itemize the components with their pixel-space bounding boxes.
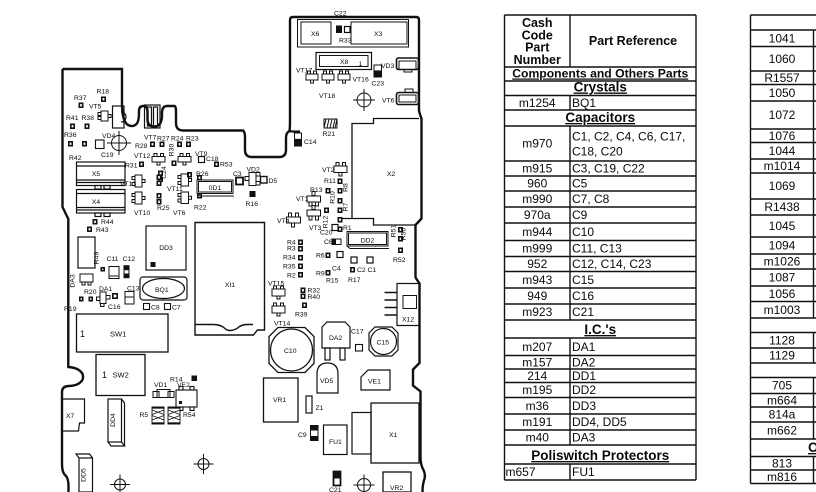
svg-text:DA2: DA2 — [572, 355, 596, 369]
svg-text:R22: R22 — [194, 205, 207, 212]
svg-text:VD4: VD4 — [102, 133, 115, 140]
svg-text:C1: C1 — [368, 267, 377, 274]
svg-text:1050: 1050 — [769, 86, 796, 100]
svg-text:C22: C22 — [334, 11, 347, 18]
svg-text:DD3: DD3 — [159, 245, 173, 252]
svg-text:R35: R35 — [283, 264, 296, 271]
svg-text:m990: m990 — [522, 192, 552, 206]
svg-text:VT18: VT18 — [319, 93, 335, 100]
svg-text:R20: R20 — [84, 289, 97, 296]
svg-text:m191: m191 — [522, 415, 552, 429]
svg-text:VT10: VT10 — [134, 210, 150, 217]
svg-text:R12: R12 — [323, 216, 330, 229]
svg-text:R43: R43 — [96, 227, 109, 234]
svg-text:m662: m662 — [767, 424, 797, 438]
svg-text:DD4, DD5: DD4, DD5 — [572, 415, 627, 429]
svg-text:XI1: XI1 — [225, 282, 235, 289]
svg-text:C16: C16 — [108, 304, 121, 311]
svg-text:Number: Number — [514, 53, 561, 67]
svg-text:Poliswitch Protectors: Poliswitch Protectors — [531, 448, 669, 463]
svg-text:C11: C11 — [107, 256, 119, 263]
svg-text:I.C.'s: I.C.'s — [584, 322, 616, 337]
svg-text:m40: m40 — [526, 431, 550, 445]
svg-text:0D1: 0D1 — [209, 185, 222, 192]
svg-text:m1003: m1003 — [764, 303, 801, 317]
svg-text:1: 1 — [102, 370, 107, 380]
svg-text:1041: 1041 — [769, 31, 796, 45]
svg-text:R1: R1 — [343, 225, 352, 232]
svg-text:C18, C20: C18, C20 — [572, 145, 623, 159]
svg-text:VR1: VR1 — [273, 397, 286, 404]
svg-text:R27: R27 — [157, 136, 170, 143]
svg-text:R53: R53 — [220, 162, 233, 169]
svg-text:R23: R23 — [186, 136, 199, 143]
svg-text:m923: m923 — [522, 305, 552, 319]
svg-text:R44: R44 — [101, 219, 114, 226]
svg-text:VT6: VT6 — [382, 98, 395, 105]
svg-text:1045: 1045 — [769, 219, 796, 233]
svg-text:R52: R52 — [393, 257, 406, 264]
svg-text:m816: m816 — [767, 470, 797, 484]
svg-text:C17: C17 — [351, 329, 364, 336]
svg-text:R39: R39 — [295, 312, 308, 319]
svg-text:X4: X4 — [92, 199, 101, 206]
svg-text:m1014: m1014 — [764, 159, 801, 173]
svg-text:C10: C10 — [284, 348, 297, 355]
svg-text:DA3: DA3 — [572, 431, 596, 445]
svg-text:R9: R9 — [316, 271, 325, 278]
svg-text:X6: X6 — [311, 31, 320, 38]
svg-text:R6: R6 — [316, 253, 325, 260]
svg-text:C11, C13: C11, C13 — [572, 242, 622, 256]
svg-text:VT4: VT4 — [277, 218, 290, 225]
svg-text:VT7: VT7 — [144, 135, 157, 142]
svg-text:m943: m943 — [522, 273, 552, 287]
svg-text:R42: R42 — [69, 155, 82, 162]
svg-text:C8: C8 — [151, 305, 160, 312]
svg-text:705: 705 — [772, 379, 792, 393]
svg-text:R37: R37 — [74, 95, 87, 102]
svg-text:Crystals: Crystals — [574, 80, 627, 95]
svg-text:m195: m195 — [522, 383, 552, 397]
svg-text:R1438: R1438 — [764, 200, 800, 214]
svg-text:R18: R18 — [97, 89, 110, 96]
svg-text:R41: R41 — [66, 115, 79, 122]
svg-text:R31: R31 — [125, 163, 138, 170]
svg-text:X2: X2 — [387, 171, 396, 178]
svg-text:R11: R11 — [324, 178, 336, 185]
svg-text:R5: R5 — [140, 412, 149, 419]
svg-text:R49: R49 — [94, 252, 101, 265]
svg-text:R7: R7 — [343, 202, 350, 211]
svg-text:R25: R25 — [157, 205, 170, 212]
svg-text:C7, C8: C7, C8 — [572, 192, 610, 206]
svg-text:C9: C9 — [572, 208, 588, 222]
svg-text:R1557: R1557 — [764, 71, 800, 85]
svg-text:DA2: DA2 — [329, 335, 342, 342]
svg-text:SW2: SW2 — [113, 371, 129, 380]
svg-text:m36: m36 — [526, 399, 550, 413]
svg-text:X12: X12 — [402, 317, 414, 324]
svg-text:DD4: DD4 — [110, 413, 117, 427]
svg-text:C16: C16 — [572, 289, 594, 303]
svg-text:C15: C15 — [572, 273, 594, 287]
svg-text:R36: R36 — [64, 132, 77, 139]
svg-text:1069: 1069 — [769, 179, 796, 193]
svg-text:C15: C15 — [377, 340, 390, 347]
svg-text:C1, C2, C4, C6, C17,: C1, C2, C4, C6, C17, — [572, 130, 685, 144]
svg-text:R34: R34 — [283, 255, 296, 262]
svg-text:m944: m944 — [522, 225, 552, 239]
svg-text:C21: C21 — [329, 487, 342, 492]
svg-text:VD1: VD1 — [154, 382, 167, 389]
svg-text:DD5: DD5 — [81, 468, 88, 482]
svg-text:DD1: DD1 — [572, 369, 596, 383]
svg-text:X5: X5 — [92, 171, 101, 178]
svg-text:VT5: VT5 — [89, 104, 102, 111]
svg-text:1072: 1072 — [769, 108, 796, 122]
svg-text:1129: 1129 — [769, 349, 795, 363]
svg-text:1056: 1056 — [769, 287, 796, 301]
svg-text:1: 1 — [80, 329, 85, 339]
svg-text:1044: 1044 — [769, 144, 796, 158]
svg-text:m999: m999 — [522, 242, 552, 256]
svg-text:X8: X8 — [340, 59, 349, 66]
svg-text:m207: m207 — [522, 340, 552, 354]
svg-text:DA3: DA3 — [70, 274, 77, 287]
svg-text:m1254: m1254 — [519, 96, 556, 110]
svg-text:DD2: DD2 — [572, 383, 596, 397]
svg-text:1: 1 — [359, 61, 363, 68]
svg-text:C9: C9 — [298, 432, 307, 439]
svg-text:FU1: FU1 — [572, 465, 595, 479]
svg-text:1128: 1128 — [769, 333, 795, 347]
svg-text:X3: X3 — [374, 31, 383, 38]
svg-text:VD5: VD5 — [320, 378, 333, 385]
svg-text:R15: R15 — [326, 278, 339, 285]
svg-text:R30: R30 — [169, 144, 176, 157]
svg-text:m157: m157 — [522, 355, 552, 369]
svg-text:BQ1: BQ1 — [155, 287, 169, 294]
svg-text:C12, C14, C23: C12, C14, C23 — [572, 257, 652, 271]
svg-text:C4: C4 — [332, 266, 341, 273]
svg-text:R8: R8 — [343, 183, 350, 192]
svg-text:C5: C5 — [572, 177, 588, 191]
svg-text:C12: C12 — [123, 256, 136, 263]
svg-text:DA1: DA1 — [572, 340, 596, 354]
svg-text:R21: R21 — [323, 131, 336, 138]
svg-text:C21: C21 — [572, 305, 594, 319]
svg-text:C3, C19, C22: C3, C19, C22 — [572, 162, 645, 176]
svg-text:R50: R50 — [401, 228, 408, 241]
svg-text:VD3: VD3 — [381, 63, 394, 70]
svg-text:1087: 1087 — [769, 271, 796, 285]
svg-text:949: 949 — [527, 289, 547, 303]
svg-text:VE1: VE1 — [368, 379, 381, 386]
svg-text:C10: C10 — [572, 225, 594, 239]
svg-text:SW1: SW1 — [110, 330, 126, 339]
svg-text:Ot: Ot — [808, 440, 816, 455]
svg-text:814a: 814a — [769, 408, 796, 422]
svg-text:X1: X1 — [389, 432, 398, 439]
svg-text:R51: R51 — [391, 225, 398, 238]
svg-text:1076: 1076 — [769, 129, 796, 143]
svg-text:214: 214 — [527, 369, 547, 383]
svg-text:R28: R28 — [135, 143, 148, 150]
svg-text:813: 813 — [772, 456, 792, 470]
svg-text:1060: 1060 — [769, 52, 796, 66]
svg-text:m915: m915 — [522, 162, 552, 176]
svg-text:X7: X7 — [66, 413, 75, 420]
svg-text:R24: R24 — [171, 136, 184, 143]
svg-text:952: 952 — [527, 257, 547, 271]
svg-text:960: 960 — [527, 177, 547, 191]
svg-text:BQ1: BQ1 — [572, 96, 596, 110]
svg-text:C19: C19 — [101, 152, 114, 159]
svg-text:Capacitors: Capacitors — [565, 110, 635, 125]
svg-text:VT16: VT16 — [353, 77, 369, 84]
svg-text:C14: C14 — [304, 139, 317, 146]
svg-text:R33: R33 — [339, 38, 352, 45]
svg-text:Components and Others Parts: Components and Others Parts — [512, 67, 688, 81]
svg-text:D5: D5 — [269, 178, 278, 185]
svg-text:FU1: FU1 — [329, 439, 342, 446]
svg-text:VT2: VT2 — [322, 167, 335, 174]
svg-text:970a: 970a — [524, 208, 551, 222]
svg-text:R10: R10 — [330, 191, 337, 204]
svg-text:R40: R40 — [308, 294, 321, 301]
svg-text:R19: R19 — [64, 306, 77, 313]
svg-text:VR2: VR2 — [390, 485, 403, 492]
svg-text:m970: m970 — [522, 137, 552, 151]
svg-text:m664: m664 — [767, 393, 797, 407]
svg-text:VT14: VT14 — [274, 321, 290, 328]
svg-text:m657: m657 — [506, 465, 536, 479]
svg-text:m1026: m1026 — [764, 255, 801, 269]
svg-text:C20: C20 — [320, 230, 333, 237]
svg-text:C7: C7 — [172, 305, 181, 312]
svg-text:C23: C23 — [372, 81, 385, 88]
svg-text:R54: R54 — [183, 412, 196, 419]
svg-text:C2: C2 — [357, 267, 366, 274]
svg-text:VT12: VT12 — [134, 153, 150, 160]
svg-text:R3: R3 — [287, 246, 296, 253]
svg-text:Part Reference: Part Reference — [589, 34, 677, 48]
svg-text:1094: 1094 — [769, 239, 796, 253]
svg-text:R38: R38 — [82, 115, 95, 122]
svg-text:R2: R2 — [287, 273, 296, 280]
svg-text:Z1: Z1 — [316, 405, 324, 412]
svg-text:R17: R17 — [348, 277, 361, 284]
svg-text:DD3: DD3 — [572, 399, 596, 413]
svg-text:VT6: VT6 — [173, 210, 186, 217]
svg-text:DD2: DD2 — [361, 238, 375, 245]
svg-text:R16: R16 — [246, 201, 259, 208]
